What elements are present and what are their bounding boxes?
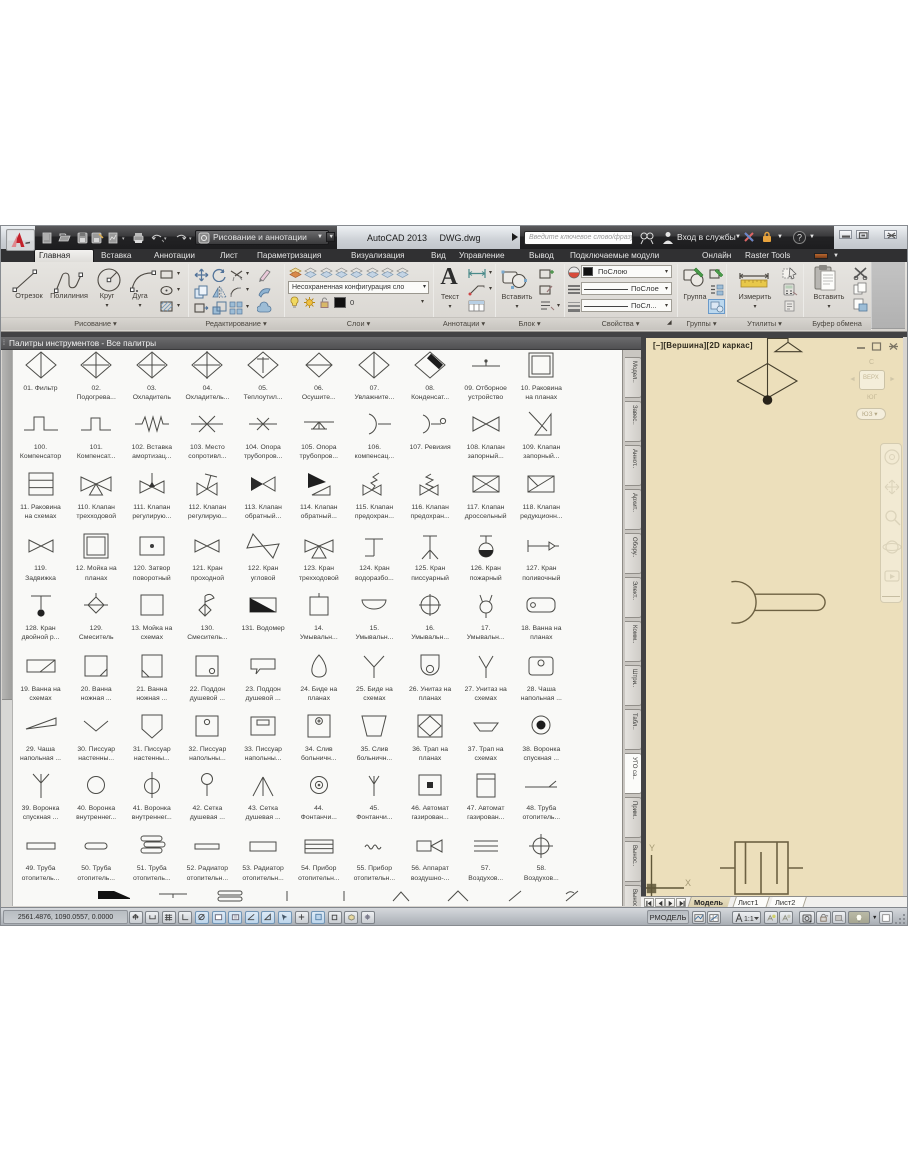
svg-text:Y: Y xyxy=(649,843,655,853)
svg-text:°: ° xyxy=(483,286,486,292)
svg-text:X: X xyxy=(685,878,691,888)
svg-text:?: ? xyxy=(797,233,802,243)
svg-text:1:1: 1:1 xyxy=(744,916,754,923)
